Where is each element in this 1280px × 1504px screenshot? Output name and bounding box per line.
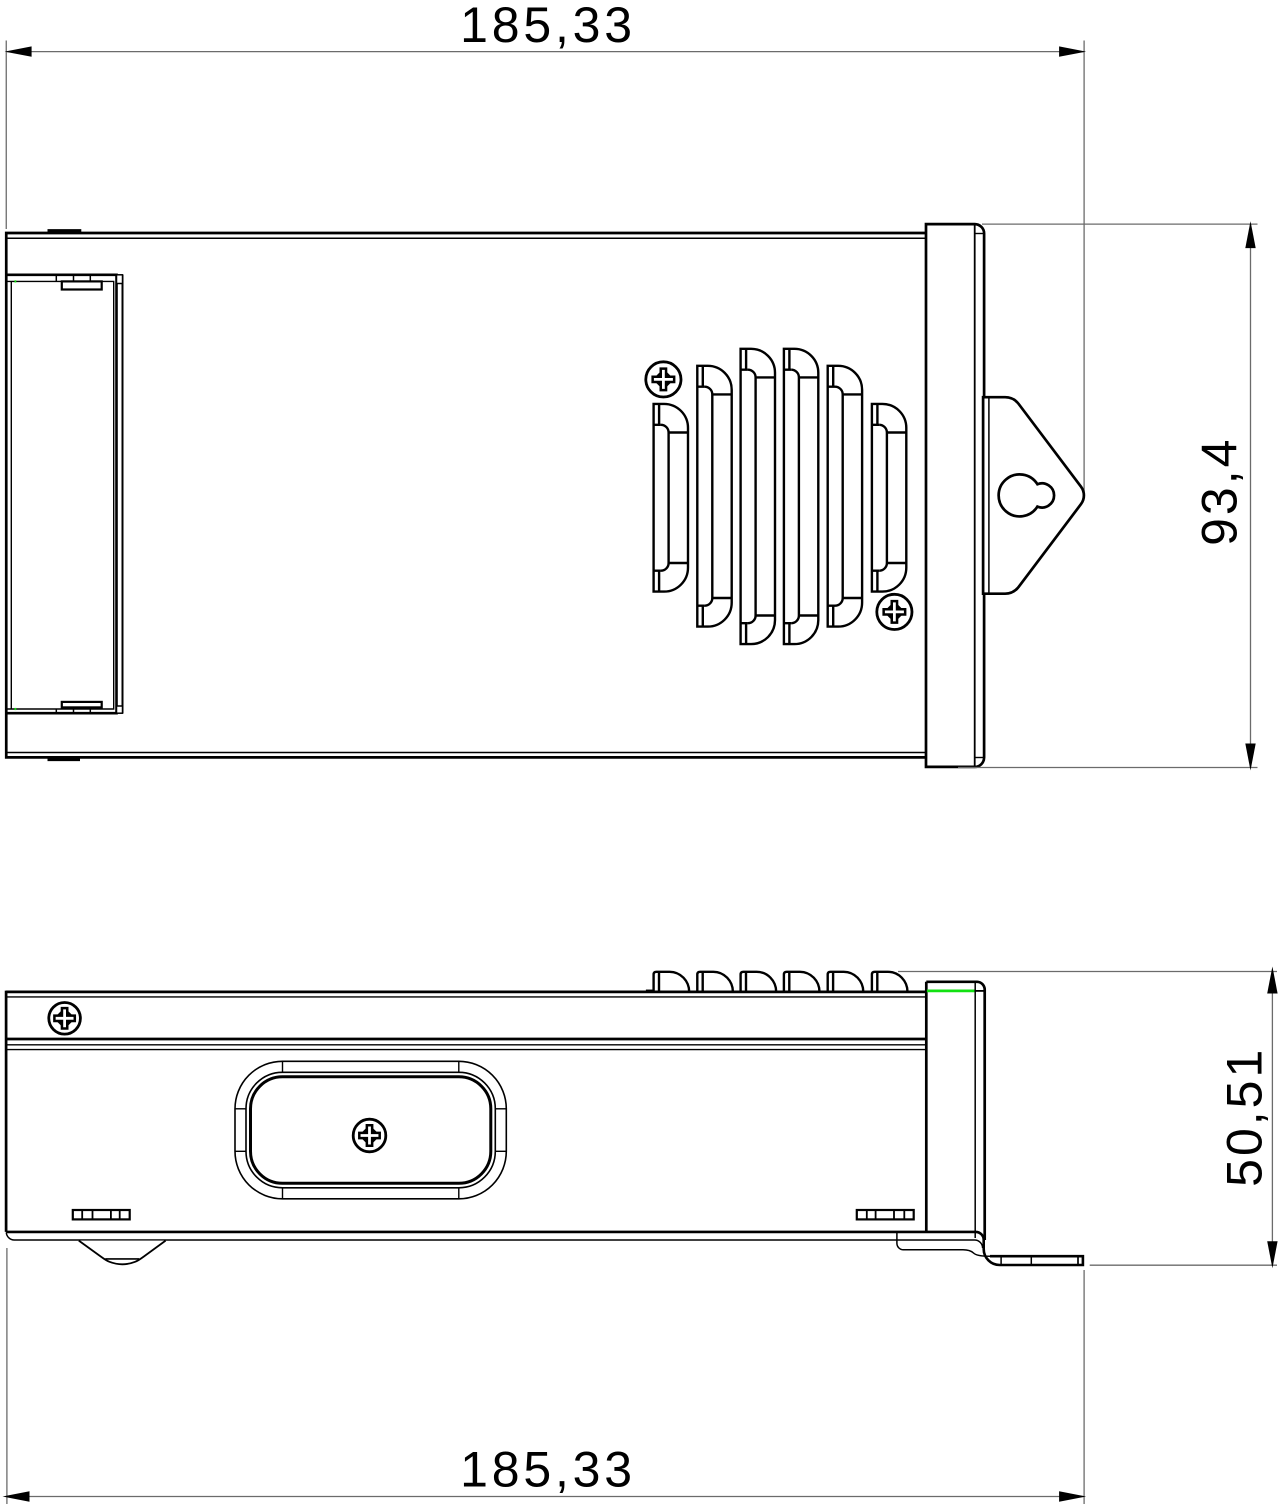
svg-text:185,33: 185,33 — [460, 0, 636, 53]
svg-text:93,4: 93,4 — [1192, 437, 1248, 546]
svg-text:185,33: 185,33 — [460, 1441, 636, 1497]
svg-text:50,51: 50,51 — [1217, 1047, 1273, 1187]
